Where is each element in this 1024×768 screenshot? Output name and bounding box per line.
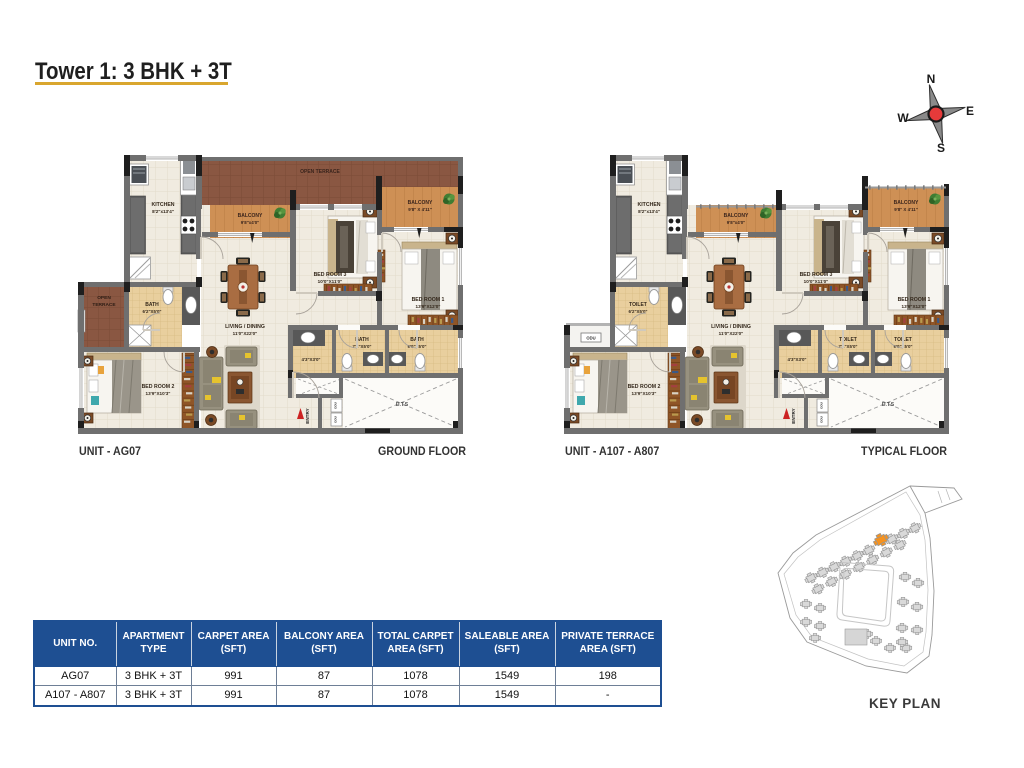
svg-text:BED ROOM 2: BED ROOM 2 bbox=[628, 384, 661, 390]
svg-text:BED ROOM 3: BED ROOM 3 bbox=[800, 272, 833, 278]
svg-text:11'0"X22'0": 11'0"X22'0" bbox=[719, 331, 744, 336]
svg-text:13'9"X10'3": 13'9"X10'3" bbox=[146, 391, 171, 396]
svg-text:LIVING / DINING: LIVING / DINING bbox=[711, 324, 751, 330]
svg-text:LIVING / DINING: LIVING / DINING bbox=[225, 324, 265, 330]
svg-text:E: E bbox=[966, 104, 974, 118]
svg-text:D.T.S: D.T.S bbox=[396, 402, 409, 408]
svg-text:N: N bbox=[927, 72, 936, 86]
svg-text:OPEN: OPEN bbox=[97, 295, 111, 301]
svg-text:BALCONY: BALCONY bbox=[724, 213, 749, 219]
svg-text:D.T.S: D.T.S bbox=[882, 402, 895, 408]
svg-text:10'0"X11'0": 10'0"X11'0" bbox=[804, 279, 829, 284]
svg-text:9'8" X 4'11": 9'8" X 4'11" bbox=[408, 207, 432, 212]
svg-text:8'2"x13'4": 8'2"x13'4" bbox=[638, 209, 660, 214]
svg-text:9'8"x4'0": 9'8"x4'0" bbox=[241, 220, 259, 225]
svg-text:BED ROOM 1: BED ROOM 1 bbox=[412, 297, 445, 303]
svg-text:TERRACE: TERRACE bbox=[92, 302, 116, 308]
svg-text:4'3"X3'0": 4'3"X3'0" bbox=[302, 357, 321, 362]
svg-text:8'2"x13'4": 8'2"x13'4" bbox=[152, 209, 174, 214]
svg-text:13'9"X12'0": 13'9"X12'0" bbox=[416, 304, 441, 309]
svg-text:W: W bbox=[897, 111, 909, 125]
svg-text:9'8" X 4'11": 9'8" X 4'11" bbox=[894, 207, 918, 212]
svg-text:BALCONY: BALCONY bbox=[894, 200, 919, 206]
svg-text:ODU: ODU bbox=[334, 416, 338, 423]
svg-text:4'3"X3'0": 4'3"X3'0" bbox=[788, 357, 807, 362]
svg-text:TOILET: TOILET bbox=[839, 337, 857, 343]
svg-text:KITCHEN: KITCHEN bbox=[637, 202, 660, 208]
svg-text:ODU: ODU bbox=[820, 416, 824, 423]
svg-text:10'0"X11'0": 10'0"X11'0" bbox=[318, 279, 343, 284]
svg-text:BED ROOM 1: BED ROOM 1 bbox=[898, 297, 931, 303]
svg-text:OPEN TERRACE: OPEN TERRACE bbox=[300, 169, 340, 175]
svg-text:TOILET: TOILET bbox=[629, 302, 647, 308]
svg-text:BATH: BATH bbox=[145, 302, 159, 308]
svg-text:11'0"X22'0": 11'0"X22'0" bbox=[233, 331, 258, 336]
svg-text:13'9"X10'3": 13'9"X10'3" bbox=[632, 391, 657, 396]
svg-text:ODU: ODU bbox=[820, 402, 824, 409]
svg-text:KITCHEN: KITCHEN bbox=[151, 202, 174, 208]
svg-text:13'9"X12'0": 13'9"X12'0" bbox=[902, 304, 927, 309]
svg-text:BALCONY: BALCONY bbox=[238, 213, 263, 219]
svg-text:9'8"x4'0": 9'8"x4'0" bbox=[727, 220, 745, 225]
svg-text:ODU: ODU bbox=[586, 336, 595, 341]
svg-text:BALCONY: BALCONY bbox=[408, 200, 433, 206]
svg-text:S: S bbox=[937, 141, 945, 155]
svg-text:ENTRY: ENTRY bbox=[305, 408, 310, 423]
svg-text:BED ROOM 2: BED ROOM 2 bbox=[142, 384, 175, 390]
svg-text:ENTRY: ENTRY bbox=[791, 408, 796, 423]
svg-text:ODU: ODU bbox=[334, 402, 338, 409]
svg-text:BED ROOM 3: BED ROOM 3 bbox=[314, 272, 347, 278]
